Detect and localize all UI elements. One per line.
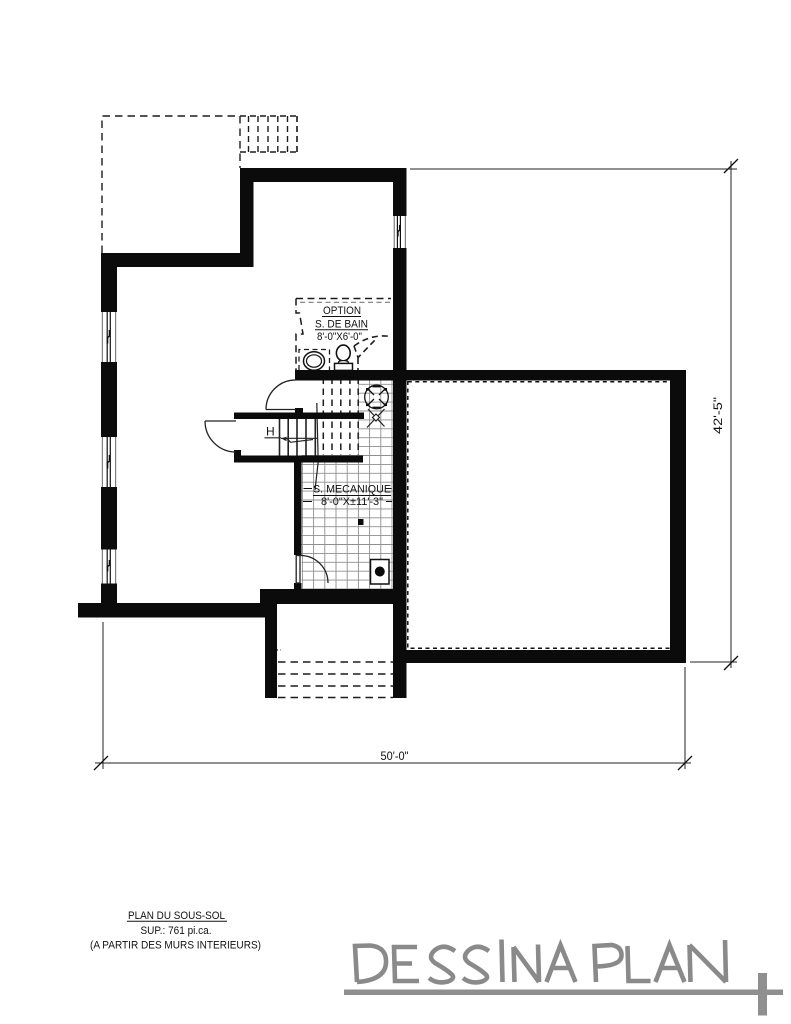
svg-text:S. DE BAIN: S. DE BAIN bbox=[315, 319, 368, 331]
svg-text:50'-0": 50'-0" bbox=[381, 751, 409, 763]
svg-text:H: H bbox=[266, 425, 275, 439]
svg-text:SUP.: 761 pi.ca.: SUP.: 761 pi.ca. bbox=[141, 925, 212, 937]
svg-text:(A PARTIR DES MURS INTERIEURS): (A PARTIR DES MURS INTERIEURS) bbox=[90, 940, 261, 952]
svg-text:8'-0"X±11'-3": 8'-0"X±11'-3" bbox=[321, 496, 383, 508]
svg-text:PLAN DU SOUS-SOL: PLAN DU SOUS-SOL bbox=[128, 910, 225, 922]
svg-text:OPTION: OPTION bbox=[323, 305, 361, 317]
svg-text:S. MECANIQUE: S. MECANIQUE bbox=[313, 484, 391, 496]
svg-text:42'-5": 42'-5" bbox=[713, 397, 725, 434]
svg-text:8'-0"X6'-0": 8'-0"X6'-0" bbox=[317, 331, 362, 343]
